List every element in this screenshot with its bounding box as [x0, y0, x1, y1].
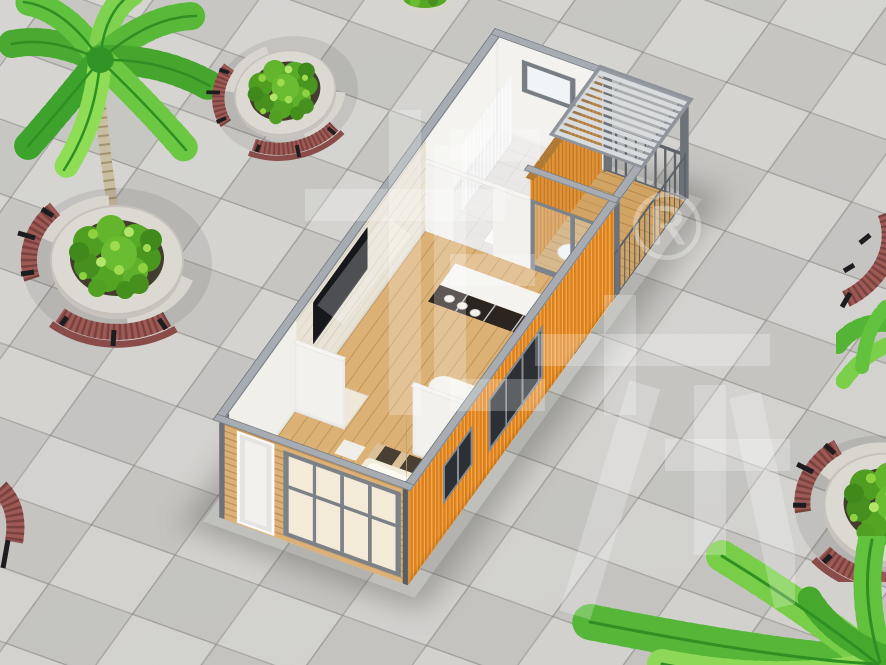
- bench-left-edge: [0, 478, 26, 578]
- front-door: [237, 431, 274, 536]
- bench-right-edge: [836, 205, 886, 390]
- planter-bench-1: [5, 168, 230, 353]
- registered-trademark: ®: [620, 182, 714, 276]
- render-stage: ®: [0, 0, 886, 665]
- palm-fronds: [12, 0, 210, 170]
- watermark-strokes: [290, 85, 795, 635]
- planter-fragment-top: [393, 0, 457, 20]
